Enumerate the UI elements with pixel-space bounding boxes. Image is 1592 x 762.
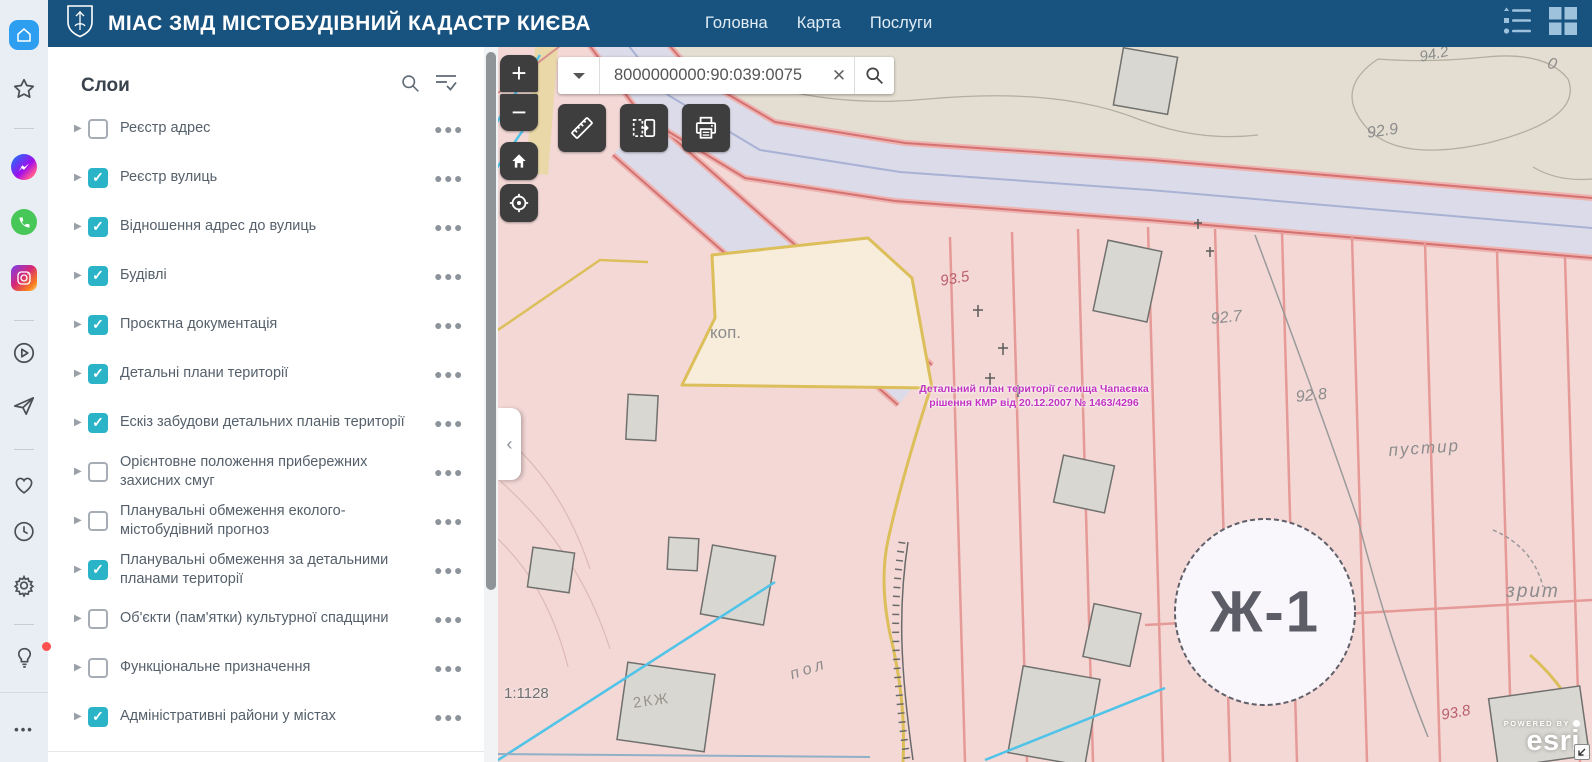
app-header: МІАС ЗМД МІСТОБУДІВНИЙ КАДАСТР КИЄВА Гол… <box>48 0 1592 47</box>
search-source-dropdown[interactable] <box>558 57 600 94</box>
dpt-annotation: Детальний план території селища Чапаєвка… <box>914 383 1154 410</box>
sidebar-divider <box>14 128 34 129</box>
layer-options-icon[interactable]: ●●● <box>434 268 464 284</box>
kyiv-coat-of-arms-logo <box>66 4 94 43</box>
layer-label: Функціональне призначення <box>120 658 432 677</box>
layer-row[interactable]: ▶ Відношення адрес до вулиць ●●● <box>48 202 484 251</box>
layer-checkbox[interactable] <box>88 168 108 188</box>
layer-options-icon[interactable]: ●●● <box>434 219 464 235</box>
layer-row[interactable]: ▶ Орієнтовне положення прибережних захис… <box>48 447 484 496</box>
layer-checkbox[interactable] <box>88 609 108 629</box>
expand-arrow-icon[interactable]: ▶ <box>74 368 88 379</box>
layer-checkbox[interactable] <box>88 266 108 286</box>
layer-checkbox[interactable] <box>88 462 108 482</box>
search-submit-icon[interactable] <box>854 57 894 94</box>
sidebar-divider <box>14 320 34 321</box>
expand-arrow-icon[interactable]: ▶ <box>74 172 88 183</box>
layer-label: Відношення адрес до вулиць <box>120 217 432 236</box>
layer-row[interactable]: ▶ Функціональне призначення ●●● <box>48 643 484 692</box>
sidebar-divider <box>0 692 48 693</box>
map-label: Ж-1 <box>1210 579 1320 646</box>
map-scale-label: 1:1128 <box>504 685 549 702</box>
layer-label: Реєстр вулиць <box>120 168 432 187</box>
expand-arrow-icon[interactable]: ▶ <box>74 564 88 575</box>
scrollbar-thumb[interactable] <box>486 52 496 590</box>
history-clock-icon[interactable] <box>12 519 37 544</box>
layer-row[interactable]: ▶ Проєктна документація ●●● <box>48 300 484 349</box>
layer-options-icon[interactable]: ●●● <box>434 660 464 676</box>
layer-options-icon[interactable]: ●●● <box>434 170 464 186</box>
send-flow-icon[interactable] <box>11 393 37 419</box>
map-label: 92.7 <box>1210 308 1243 329</box>
app-title: МІАС ЗМД МІСТОБУДІВНИЙ КАДАСТР КИЄВА <box>108 12 591 36</box>
expand-arrow-icon[interactable]: ▶ <box>74 515 88 526</box>
swipe-tool-button[interactable] <box>620 104 668 152</box>
layer-row[interactable]: ▶ Об'єкти (пам'ятки) культурної спадщини… <box>48 594 484 643</box>
layer-row[interactable]: ▶ Будівлі ●●● <box>48 251 484 300</box>
settings-gear-icon[interactable] <box>12 573 37 598</box>
layer-options-icon[interactable]: ●●● <box>434 513 464 529</box>
layer-row[interactable]: ▶ Ескіз забудови детальних планів терито… <box>48 398 484 447</box>
expand-arrow-icon[interactable]: ▶ <box>74 123 88 134</box>
clear-search-icon[interactable]: ✕ <box>824 57 854 94</box>
heart-icon[interactable] <box>12 472 37 497</box>
sidebar-divider <box>14 624 34 625</box>
layer-row[interactable]: ▶ Планувальні обмеження за детальними пл… <box>48 545 484 594</box>
layer-label: Будівлі <box>120 266 432 285</box>
layer-label: Об'єкти (пам'ятки) культурної спадщини <box>120 609 432 628</box>
layer-checkbox[interactable] <box>88 364 108 384</box>
layer-options-icon[interactable]: ●●● <box>434 464 464 480</box>
layer-checkbox[interactable] <box>88 658 108 678</box>
expand-arrow-icon[interactable]: ▶ <box>74 319 88 330</box>
parcel-search-bar: ✕ <box>558 57 894 94</box>
instagram-icon[interactable] <box>11 265 37 291</box>
layers-search-icon[interactable] <box>400 73 421 99</box>
layer-row[interactable]: ▶ Реєстр вулиць ●●● <box>48 153 484 202</box>
layer-row[interactable]: ▶ Планувальні обмеження еколого- містобу… <box>48 496 484 545</box>
layer-label: Проєктна документація <box>120 315 432 334</box>
video-popout-icon[interactable] <box>11 340 37 366</box>
layer-row[interactable]: ▶ Адміністративні райони у містах ●●● <box>48 692 484 741</box>
expand-arrow-icon[interactable]: ▶ <box>74 221 88 232</box>
measure-tool-button[interactable] <box>558 104 606 152</box>
layer-list: ▶ Реєстр адрес ●●● ▶ Реєстр вулиць ●●● ▶… <box>48 104 484 741</box>
nav-map[interactable]: Карта <box>797 14 841 33</box>
layer-checkbox[interactable] <box>88 511 108 531</box>
layer-row[interactable]: ▶ Реєстр адрес ●●● <box>48 104 484 153</box>
speed-dial-home-icon[interactable] <box>9 20 39 50</box>
print-tool-button[interactable] <box>682 104 730 152</box>
messenger-icon[interactable] <box>11 154 37 180</box>
map-viewport[interactable]: коп.93.592.792.892.994.2пустирзрит93.8по… <box>498 47 1592 762</box>
expand-arrow-icon[interactable]: ▶ <box>74 613 88 624</box>
map-label: зрит <box>1506 581 1560 603</box>
layer-options-icon[interactable]: ●●● <box>434 317 464 333</box>
locate-button[interactable] <box>500 184 538 222</box>
layer-row[interactable]: ▶ Детальні плани території ●●● <box>48 349 484 398</box>
layers-panel: Слои ▶ Реєстр адрес ●●● ▶ Реєстр вулиць … <box>48 47 484 762</box>
layer-checkbox[interactable] <box>88 413 108 433</box>
layer-label: Планувальні обмеження еколого- містобуді… <box>120 502 432 540</box>
main-nav: Головна Карта Послуги <box>705 0 932 47</box>
search-input[interactable] <box>600 57 824 94</box>
panel-footer-divider <box>48 751 484 752</box>
map-label: 92.8 <box>1295 386 1328 407</box>
layer-checkbox[interactable] <box>88 119 108 139</box>
expand-arrow-icon[interactable]: ▶ <box>74 711 88 722</box>
layer-label: Ескіз забудови детальних планів територі… <box>120 413 432 432</box>
panel-collapse-handle[interactable]: ‹ <box>498 408 521 480</box>
layer-label: Реєстр адрес <box>120 119 432 138</box>
layers-panel-scrollbar[interactable] <box>484 47 498 762</box>
home-extent-button[interactable] <box>500 142 538 180</box>
notification-badge <box>42 642 51 651</box>
layer-options-icon[interactable]: ●●● <box>434 611 464 627</box>
nav-services[interactable]: Послуги <box>870 14 932 33</box>
setup-bulb-icon[interactable] <box>0 645 48 670</box>
apps-grid-icon[interactable] <box>1548 6 1578 41</box>
layer-checkbox[interactable] <box>88 315 108 335</box>
layer-label: Адміністративні райони у містах <box>120 707 432 726</box>
filter-list-icon[interactable] <box>434 72 458 99</box>
expand-arrow-icon[interactable]: ▶ <box>74 662 88 673</box>
layer-label: Планувальні обмеження за детальними план… <box>120 551 432 589</box>
layer-options-icon[interactable]: ●●● <box>434 562 464 578</box>
layer-checkbox[interactable] <box>88 560 108 580</box>
bookmarks-star-icon[interactable] <box>11 76 37 102</box>
attribution-expand-icon[interactable] <box>1574 744 1590 760</box>
zoom-out-button[interactable]: − <box>500 94 538 131</box>
map-label: коп. <box>710 323 741 343</box>
layer-checkbox[interactable] <box>88 217 108 237</box>
browser-sidebar: ••• <box>0 0 48 762</box>
layer-label: Орієнтовне положення прибережних захисни… <box>120 453 432 491</box>
layer-options-icon[interactable]: ●●● <box>434 366 464 382</box>
legend-icon[interactable] <box>1502 7 1532 40</box>
whatsapp-icon[interactable] <box>11 209 37 235</box>
layer-options-icon[interactable]: ●●● <box>434 415 464 431</box>
esri-attribution: POWERED BY esri <box>1504 719 1580 756</box>
expand-arrow-icon[interactable]: ▶ <box>74 466 88 477</box>
zoom-in-button[interactable]: + <box>500 55 538 92</box>
expand-arrow-icon[interactable]: ▶ <box>74 417 88 428</box>
layer-checkbox[interactable] <box>88 707 108 727</box>
expand-arrow-icon[interactable]: ▶ <box>74 270 88 281</box>
layers-panel-title: Слои <box>81 75 130 97</box>
nav-home[interactable]: Головна <box>705 14 768 33</box>
layer-options-icon[interactable]: ●●● <box>434 709 464 725</box>
sidebar-divider <box>14 449 34 450</box>
esri-logo: esri <box>1504 728 1580 756</box>
layer-options-icon[interactable]: ●●● <box>434 121 464 137</box>
sidebar-more-icon[interactable]: ••• <box>14 722 34 737</box>
layer-label: Детальні плани території <box>120 364 432 383</box>
